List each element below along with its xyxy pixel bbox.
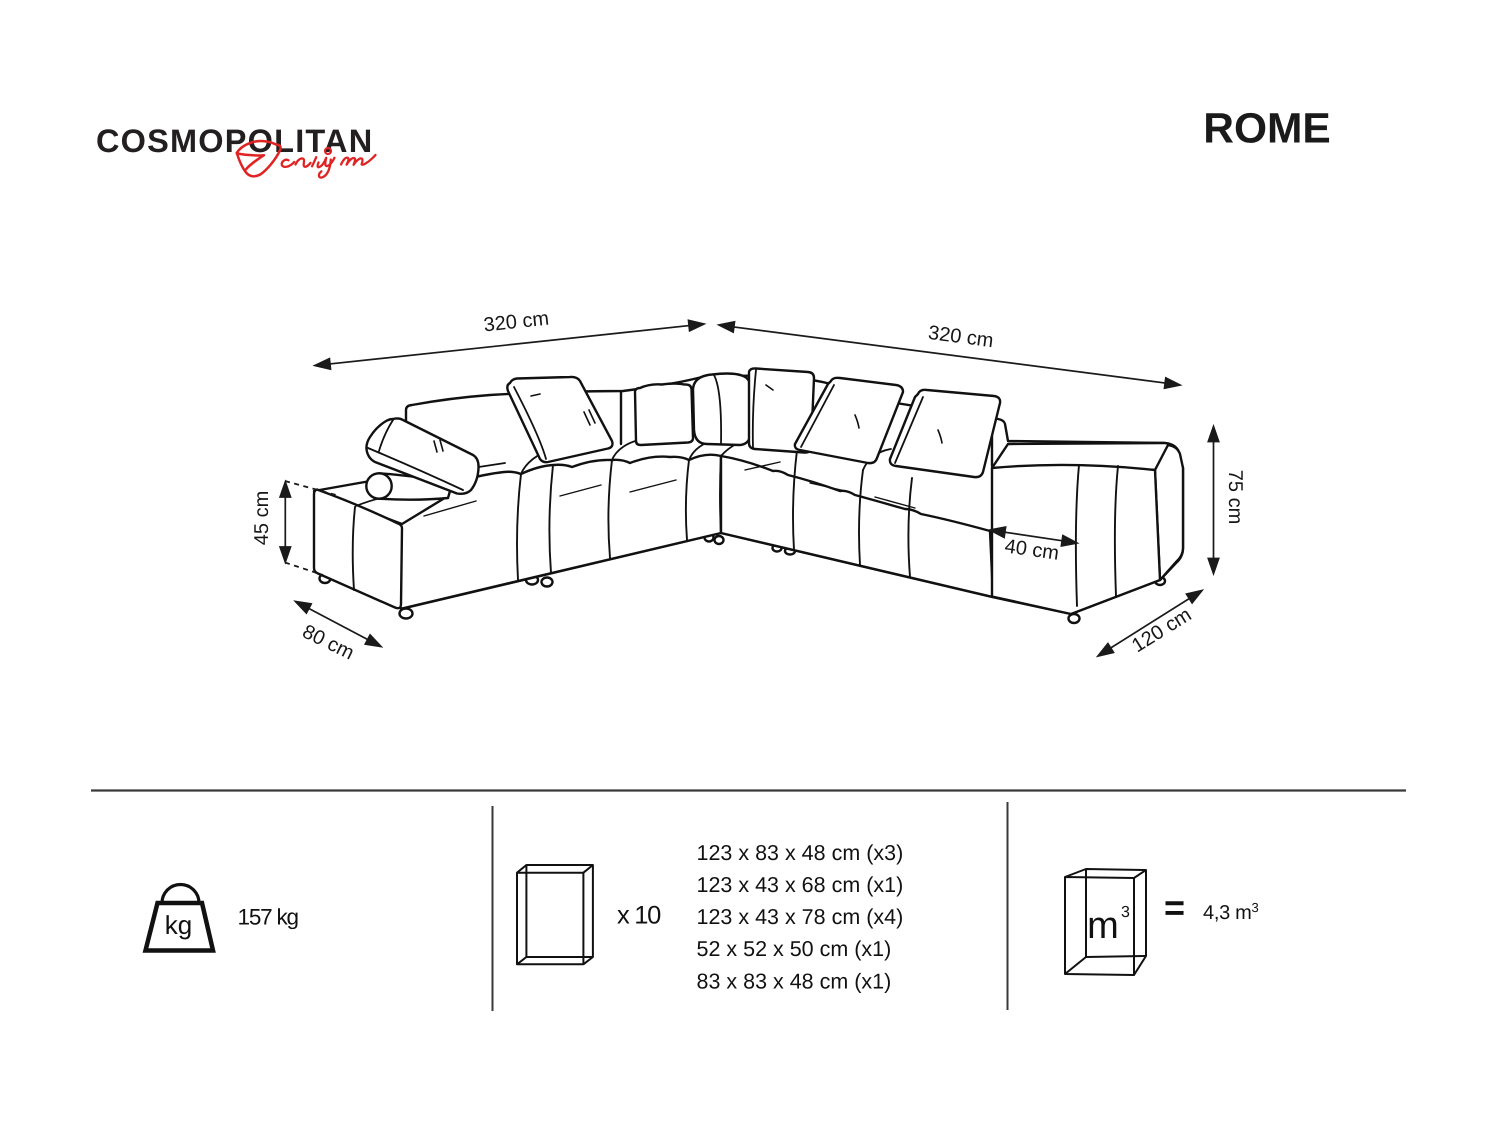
svg-text:x 10: x 10 [617, 902, 661, 930]
svg-text:52 x 52 x 50 cm (x1): 52 x 52 x 50 cm (x1) [697, 937, 892, 961]
svg-text:3: 3 [1121, 904, 1130, 921]
svg-text:123 x 43 x 68 cm (x1): 123 x 43 x 68 cm (x1) [697, 873, 904, 897]
svg-text:320 cm: 320 cm [927, 322, 995, 352]
svg-text:4,3 m3: 4,3 m3 [1203, 900, 1259, 924]
svg-text:45 cm: 45 cm [251, 491, 273, 545]
svg-text:COSMOPOLITAN: COSMOPOLITAN [96, 123, 373, 159]
svg-text:75 cm: 75 cm [1224, 470, 1246, 524]
svg-text:ROME: ROME [1203, 106, 1331, 153]
svg-text:83 x 83 x 48 cm (x1): 83 x 83 x 48 cm (x1) [697, 969, 892, 993]
svg-text:=: = [1164, 887, 1185, 928]
svg-text:kg: kg [165, 910, 192, 940]
svg-text:320 cm: 320 cm [483, 308, 551, 337]
svg-text:123 x 83 x 48 cm (x3): 123 x 83 x 48 cm (x3) [697, 841, 904, 865]
svg-text:80 cm: 80 cm [299, 621, 358, 665]
svg-text:m: m [1087, 905, 1119, 947]
svg-text:123 x 43 x 78 cm (x4): 123 x 43 x 78 cm (x4) [697, 905, 904, 929]
svg-text:157 kg: 157 kg [238, 905, 299, 930]
